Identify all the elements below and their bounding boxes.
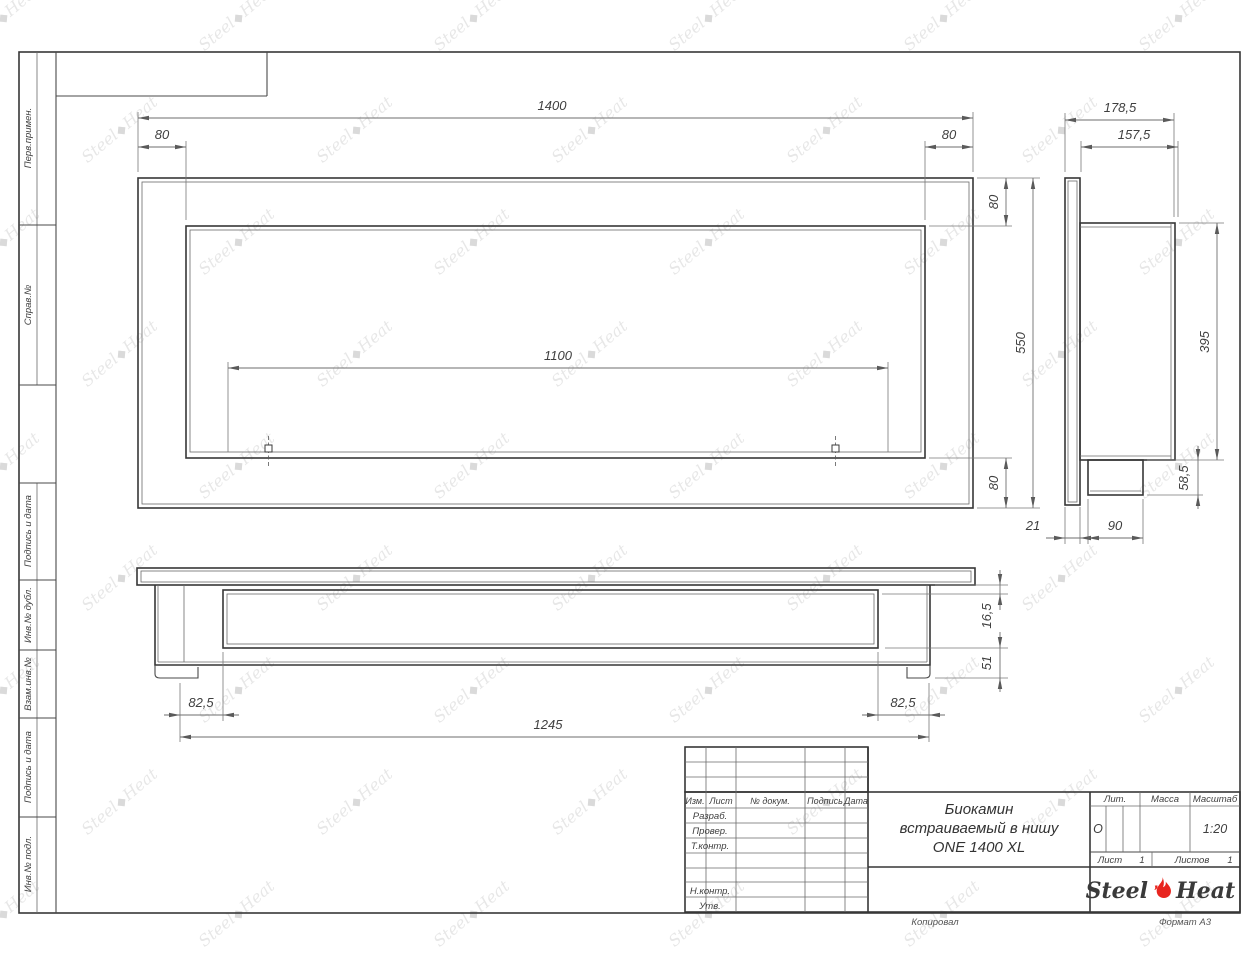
dim-front-margin-top: 80 (986, 194, 1001, 209)
strip-label-perv-primen: Перв.примен. (23, 108, 34, 169)
stamp-row-razrab: Разраб. (693, 811, 727, 822)
dim-front-margin-left: 80 (155, 127, 170, 142)
side-view-dimensions: 178,5 157,5 395 58,5 21 90 (1025, 100, 1224, 544)
stamp-scale-value: 1:20 (1203, 822, 1227, 836)
stamp-sheet-label: Лист (1097, 855, 1123, 866)
side-view (1065, 178, 1175, 505)
stamp-title-line3: ONE 1400 XL (933, 839, 1026, 856)
dim-side-flange: 21 (1025, 518, 1040, 533)
dim-front-total-height: 550 (1013, 331, 1028, 353)
drawing-page: Steel◆HeatSteel◆HeatSteel◆HeatSteel◆Heat… (0, 0, 1255, 970)
strip-label-sprav-no: Справ.№ (23, 285, 34, 326)
logo-text-steel: Steel (1086, 878, 1148, 904)
stamp-sheets-label: Листов (1174, 855, 1210, 866)
flame-icon (1154, 877, 1171, 898)
stamp-row-prover: Провер. (692, 826, 727, 837)
stamp-col-izm: Изм. (685, 796, 704, 806)
stamp-col-sign: Подпись (807, 796, 843, 806)
dim-side-body-height: 395 (1197, 330, 1212, 352)
strip-label-inv-podl: Инв.№ подл. (23, 836, 34, 892)
dim-side-tray-height: 58,5 (1176, 465, 1191, 491)
stamp-col-doc: № докум. (750, 796, 790, 806)
stamp-lit-label: Лит. (1103, 794, 1126, 805)
strip-label-vzam-inv: Взам.инв.№ (23, 657, 34, 710)
stamp-sheets-num: 1 (1227, 855, 1232, 866)
title-block-texts: Изм. Лист № докум. Подпись Дата Разраб. … (685, 794, 1237, 928)
bottom-view (137, 568, 975, 678)
stamp-row-utv: Утв. (698, 901, 721, 912)
strip-label-inv-dubl: Инв.№ дубл. (23, 587, 34, 643)
stamp-sheet-num: 1 (1139, 855, 1144, 866)
dim-side-total-depth: 178,5 (1104, 100, 1137, 115)
front-view (138, 178, 973, 508)
strip-label-podpis-data-1: Подпись и дата (23, 495, 34, 567)
stamp-row-tkontr: Т.контр. (691, 841, 729, 852)
stamp-lit-value: О (1093, 822, 1103, 836)
strip-label-podpis-data-2: Подпись и дата (23, 731, 34, 803)
logo-text-heat: Heat (1175, 878, 1235, 904)
front-view-dimensions: 1400 80 80 1100 80 550 (138, 98, 1040, 508)
stamp-title-line2: встраиваемый в нишу (900, 820, 1060, 837)
stamp-scale-label: Масштаб (1193, 794, 1238, 805)
dim-front-margin-bottom: 80 (986, 475, 1001, 490)
bottom-view-dimensions: 16,5 51 82,5 82,5 1245 (164, 570, 1008, 742)
dim-front-opening-width: 1100 (544, 348, 573, 363)
dim-bottom-inset-left: 82,5 (188, 695, 214, 710)
stamp-col-list: Лист (708, 796, 733, 806)
stamp-row-nkontr: Н.контр. (690, 886, 730, 897)
stamp-mass-label: Масса (1151, 794, 1179, 805)
dim-front-total-width: 1400 (538, 98, 568, 113)
frame-borders (19, 52, 1240, 913)
stamp-col-date: Дата (843, 796, 868, 806)
dim-front-margin-right: 80 (942, 127, 957, 142)
footer-copied: Копировал (911, 917, 959, 928)
footer-format: Формат А3 (1159, 917, 1212, 928)
dim-side-tray-depth: 90 (1108, 518, 1123, 533)
dim-bottom-inset-right: 82,5 (890, 695, 916, 710)
stamp-title-line1: Биокамин (945, 801, 1014, 818)
steelheat-logo: Steel Heat (1086, 877, 1236, 904)
dim-bottom-foot-height: 51 (979, 656, 994, 670)
dim-bottom-plate-gap: 16,5 (979, 603, 994, 629)
dim-bottom-niche-length: 1245 (534, 717, 564, 732)
dim-side-inner-depth: 157,5 (1118, 127, 1151, 142)
technical-drawing: Перв.примен. Справ.№ Подпись и дата Инв.… (0, 0, 1255, 970)
